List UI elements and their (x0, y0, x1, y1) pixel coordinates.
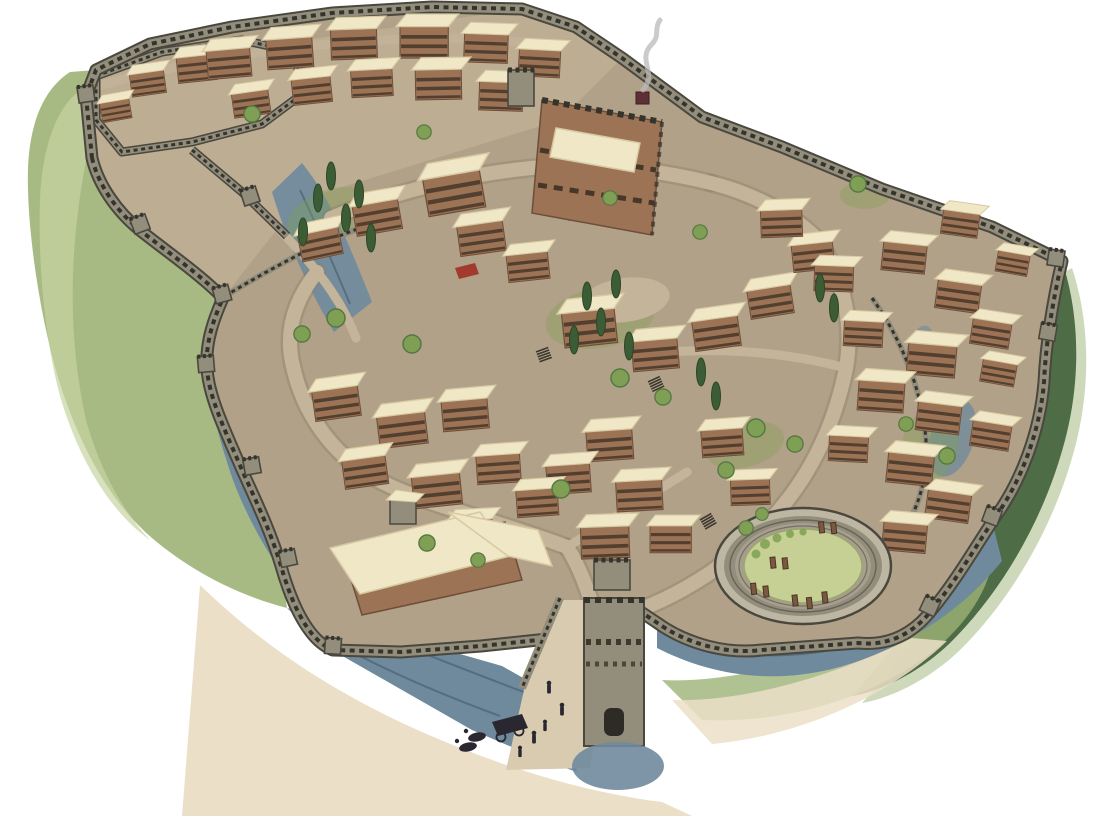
citadel-scene: Bird's-eye watercolor reconstruction of … (0, 0, 1101, 816)
cypress-tree (625, 332, 634, 360)
round-tree (403, 335, 421, 353)
cypress-tree (314, 184, 323, 212)
tower (324, 637, 341, 654)
cypress-tree (583, 282, 592, 310)
citadel-illustration: Bird's-eye watercolor reconstruction of … (0, 0, 1101, 816)
round-tree (939, 448, 955, 464)
cypress-tree (355, 180, 364, 208)
inner-gatehouse (594, 560, 630, 590)
tower (279, 549, 298, 568)
round-tree (787, 436, 803, 452)
palace-tower (508, 70, 534, 106)
round-tree (655, 389, 671, 405)
cypress-tree (697, 358, 706, 386)
person (518, 746, 522, 758)
cypress-tree (327, 162, 336, 190)
cypress-tree (816, 274, 825, 302)
round-tree (327, 309, 345, 327)
round-tree (739, 521, 753, 535)
round-tree (603, 191, 617, 205)
tower (197, 355, 214, 372)
altar-chimney (636, 92, 649, 104)
round-tree (756, 508, 769, 521)
round-tree (611, 369, 629, 387)
round-tree (552, 480, 570, 498)
cypress-tree (570, 326, 579, 354)
cypress-tree (597, 308, 606, 336)
cypress-tree (830, 294, 839, 322)
round-tree (899, 417, 913, 431)
round-tree (471, 553, 485, 567)
gate-doorway (604, 708, 624, 736)
round-tree (244, 106, 260, 122)
person (547, 681, 552, 694)
round-tree (294, 326, 310, 342)
tower (243, 457, 262, 476)
round-tree (747, 419, 765, 437)
person (532, 731, 537, 744)
gate-rock-base (572, 742, 664, 790)
cypress-tree (367, 224, 376, 252)
tower (1039, 323, 1058, 342)
cypress-tree (299, 218, 308, 246)
cypress-tree (342, 204, 351, 232)
precinct-lawn (744, 529, 862, 603)
person (560, 703, 565, 716)
round-tree (419, 535, 435, 551)
person (543, 720, 547, 732)
tower (1047, 249, 1065, 267)
tower (77, 85, 95, 103)
round-tree (718, 462, 734, 478)
cypress-tree (612, 270, 621, 298)
round-tree (693, 225, 707, 239)
round-tree (417, 125, 431, 139)
tower (212, 284, 232, 304)
round-tree (850, 176, 866, 192)
cypress-tree (712, 382, 721, 410)
